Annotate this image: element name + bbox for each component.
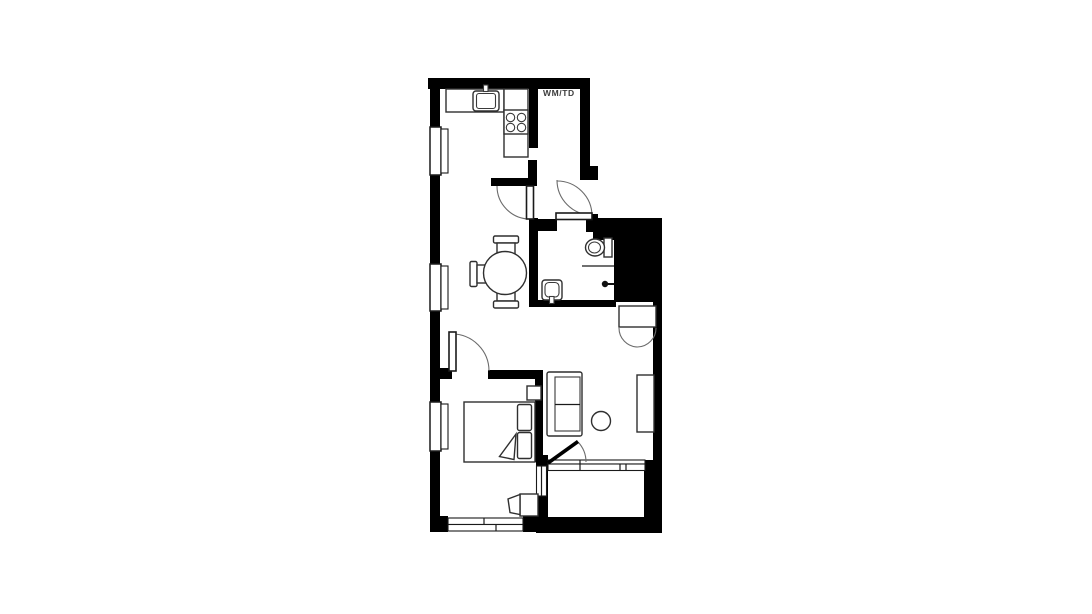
bathroom-left-wall bbox=[529, 218, 538, 307]
bathroom-top-wall bbox=[536, 219, 557, 231]
pillow-bottom bbox=[518, 433, 532, 459]
desk bbox=[520, 494, 538, 516]
kitchen-door-leaf bbox=[527, 186, 534, 219]
basin-tap bbox=[550, 297, 555, 304]
balcony-right-wall bbox=[644, 460, 662, 533]
dining-chair-left-back bbox=[470, 262, 477, 287]
wardrobe-doors bbox=[619, 328, 656, 347]
bedroom bbox=[464, 386, 541, 516]
nightstand bbox=[527, 386, 541, 400]
bathroom-door bbox=[556, 181, 592, 220]
entry-step-wall bbox=[580, 166, 598, 180]
wardrobe-door-swing-left bbox=[619, 328, 638, 347]
bathroom-door-leaf bbox=[556, 213, 592, 220]
window-dining-left bbox=[430, 264, 448, 311]
pillow-top bbox=[518, 405, 532, 431]
service-shaft bbox=[614, 225, 662, 302]
kitchen-utility-divider-wall bbox=[529, 85, 538, 148]
bedroom-top-wall bbox=[488, 370, 543, 379]
sideboard bbox=[637, 375, 654, 432]
right-wall-upper bbox=[580, 78, 590, 168]
window-kitchen-left bbox=[430, 127, 448, 175]
bedroom-door-swing bbox=[452, 334, 489, 371]
windows bbox=[430, 127, 645, 532]
side-table-round bbox=[592, 412, 611, 431]
dining-chair-top-back bbox=[494, 236, 519, 243]
balcony-glazing bbox=[548, 460, 645, 471]
window-bedroom-balcony-divider bbox=[537, 466, 547, 496]
wash-basin-inner bbox=[545, 283, 559, 298]
desk-chair bbox=[508, 495, 520, 515]
kitchen-door-swing bbox=[497, 186, 530, 219]
hall-divider-wall bbox=[528, 160, 537, 186]
bedroom-door bbox=[449, 332, 489, 371]
balcony-bottom-wall bbox=[536, 517, 644, 533]
dining-chair-bottom-back bbox=[494, 301, 519, 308]
dining-table-round bbox=[484, 252, 527, 295]
floor-plan: WM/TD bbox=[0, 0, 1092, 614]
burner bbox=[506, 123, 514, 131]
bathroom bbox=[542, 238, 614, 304]
window-bedroom-bottom bbox=[448, 516, 523, 532]
kitchen-door bbox=[497, 186, 534, 219]
utility-label: WM/TD bbox=[543, 88, 575, 98]
kitchen-door-stub-wall bbox=[491, 178, 529, 186]
bathroom-bottom-wall bbox=[529, 300, 616, 307]
living-area bbox=[547, 306, 656, 436]
kitchen-tap bbox=[484, 85, 489, 92]
bedroom-living-divider-wall bbox=[535, 370, 543, 462]
window-bedroom-left bbox=[430, 402, 448, 451]
kitchen bbox=[446, 85, 528, 157]
burner bbox=[506, 113, 514, 121]
dining-area bbox=[470, 236, 527, 308]
balcony-door-swing bbox=[578, 442, 586, 462]
burner bbox=[517, 113, 525, 121]
kitchen-sink-basin bbox=[477, 94, 496, 109]
toilet-bowl-inner bbox=[589, 242, 601, 253]
bedroom-door-leaf bbox=[449, 332, 456, 371]
burner bbox=[517, 123, 525, 131]
wardrobe bbox=[619, 306, 656, 327]
